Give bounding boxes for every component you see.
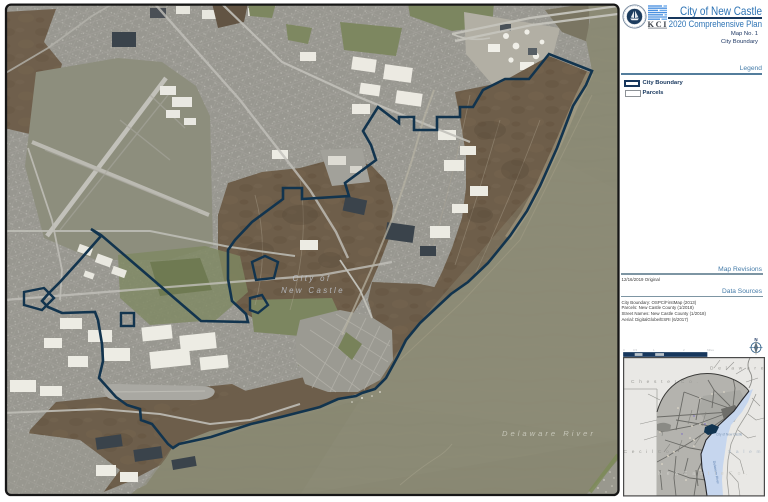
svg-text:2: 2 — [683, 348, 685, 352]
svg-text:D e l a w a r e C o .: D e l a w a r e C o . — [710, 366, 765, 372]
svg-text:C h e s t e r C o .: C h e s t e r C o . — [631, 379, 700, 385]
svg-text:0: 0 — [623, 348, 625, 352]
svg-text:New Castle: New Castle — [281, 286, 345, 295]
svg-text:City of: City of — [293, 274, 332, 283]
svg-text:0.5: 0.5 — [633, 348, 638, 352]
svg-text:C e c i l C o .: C e c i l C o . — [624, 449, 677, 455]
svg-text:Miles: Miles — [707, 348, 715, 352]
svg-text:1: 1 — [653, 348, 655, 352]
svg-text:N e w C a s t l e C o .: N e w C a s t l e C o . — [658, 471, 749, 477]
svg-text:City of New Castle: City of New Castle — [716, 433, 742, 437]
svg-text:Delaware River: Delaware River — [502, 429, 596, 438]
svg-text:S a l e m C o .: S a l e m C o . — [728, 449, 765, 455]
